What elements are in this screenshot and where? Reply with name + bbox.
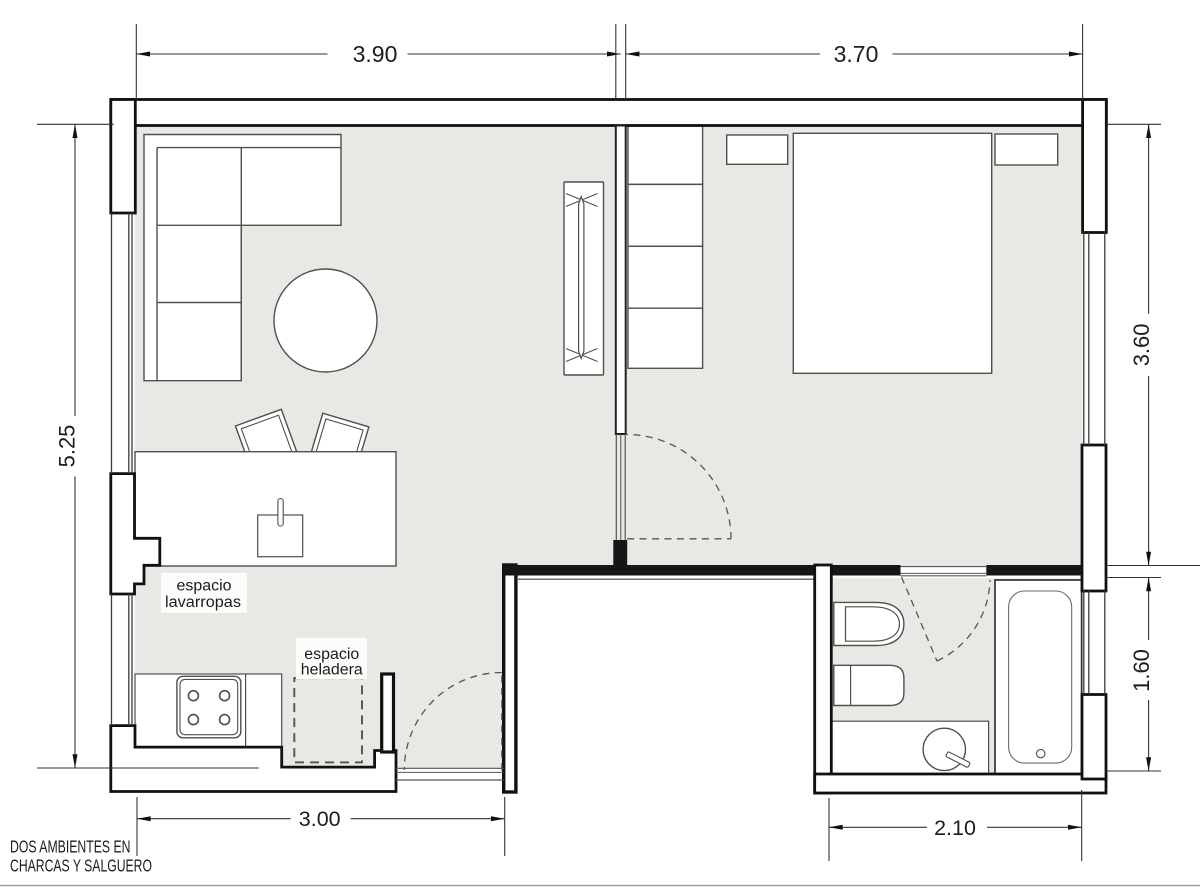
svg-text:3.60: 3.60 [1129,323,1154,366]
svg-text:CHARCAS Y SALGUERO: CHARCAS Y SALGUERO [10,856,152,876]
svg-text:heladera: heladera [301,662,363,679]
svg-text:espacio: espacio [177,578,232,595]
svg-text:2.10: 2.10 [934,816,976,840]
svg-text:5.25: 5.25 [55,425,80,468]
svg-text:1.60: 1.60 [1129,649,1154,692]
svg-text:3.90: 3.90 [353,41,398,67]
svg-text:lavarropas: lavarropas [165,594,241,611]
svg-text:3.00: 3.00 [299,807,341,831]
svg-text:DOS AMBIENTES EN: DOS AMBIENTES EN [10,837,131,857]
svg-text:espacio: espacio [304,646,359,663]
svg-text:3.70: 3.70 [834,41,879,67]
